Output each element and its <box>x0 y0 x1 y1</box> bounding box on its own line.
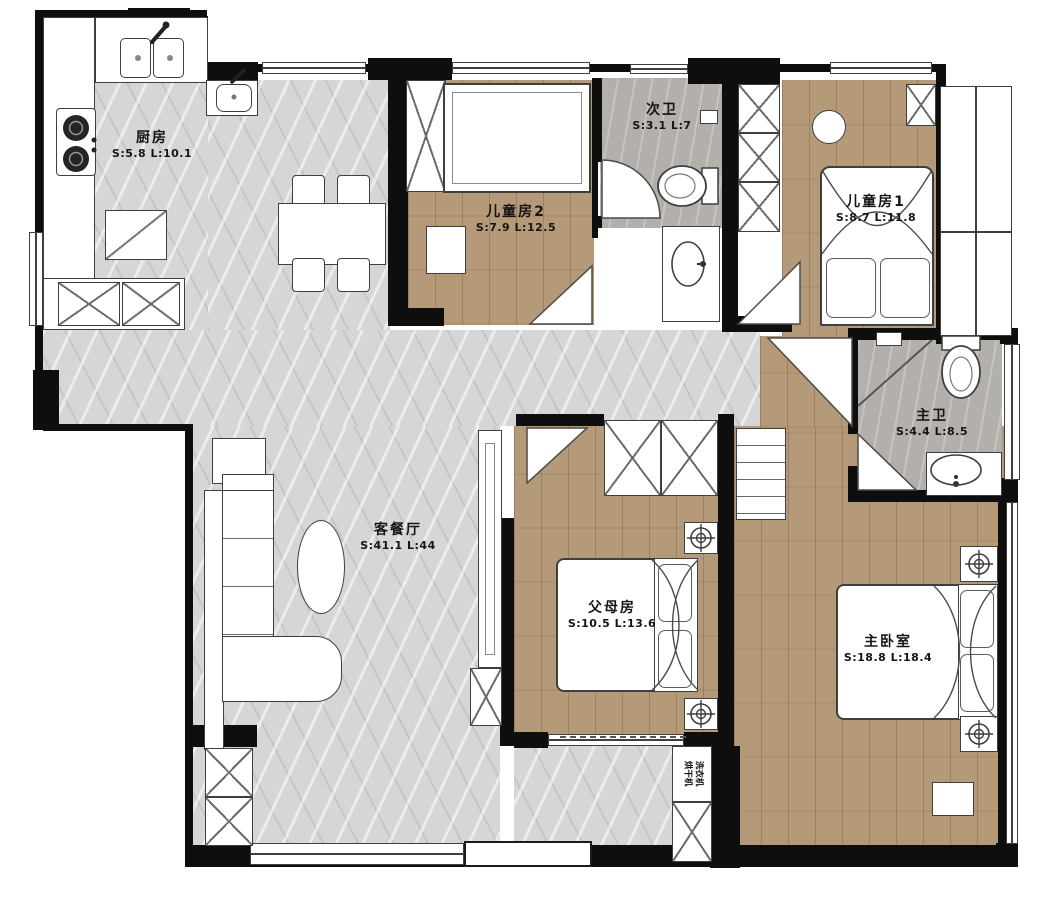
wall-segment <box>208 62 258 80</box>
bed-master <box>836 584 960 720</box>
window <box>262 62 366 74</box>
wall-segment <box>596 78 602 162</box>
wall-segment <box>516 414 604 426</box>
kitchen-cabinet <box>58 282 120 326</box>
wall-segment <box>388 78 408 316</box>
pillow <box>960 654 994 712</box>
window <box>548 734 684 746</box>
wardrobe <box>738 84 780 133</box>
window <box>830 62 932 74</box>
wall-segment <box>35 10 43 236</box>
floor-second-bath <box>600 78 722 228</box>
nightstand <box>960 546 998 582</box>
round-stool <box>812 110 846 144</box>
window <box>630 64 688 74</box>
dining-chair <box>292 258 325 292</box>
fridge <box>105 210 167 260</box>
kitchen-sink-left-basin <box>120 38 151 78</box>
desk <box>426 226 466 274</box>
shower-head <box>876 332 902 346</box>
shower-fixture <box>700 110 718 124</box>
nightstand <box>684 698 718 730</box>
wall-segment <box>514 732 548 748</box>
wall-segment <box>722 64 738 320</box>
wall-segment <box>368 58 452 80</box>
washer-dryer-label: 洗衣机 烘干机 <box>674 748 712 800</box>
wall-segment <box>185 424 193 848</box>
wardrobe <box>406 80 446 192</box>
storage-cabinet <box>470 668 502 726</box>
dining-chair <box>337 258 370 292</box>
storage-cabinet <box>205 748 253 797</box>
wall-segment <box>35 324 43 374</box>
laundry-cabinet <box>672 802 712 862</box>
wall-segment <box>500 518 514 746</box>
bed-mattress <box>452 92 582 184</box>
dryer-label-text: 烘干机 <box>682 761 693 787</box>
floor-plan: 洗衣机 烘干机 <box>0 0 1059 912</box>
sofa-seats <box>222 490 274 638</box>
pillow <box>960 590 994 648</box>
sofa-chaise <box>222 636 342 702</box>
tv-cabinet <box>478 430 502 668</box>
dining-table <box>278 203 386 265</box>
pillow <box>658 630 692 688</box>
kitchen-sink-right-basin <box>153 38 184 78</box>
pillow <box>880 258 930 318</box>
wall-segment <box>388 308 444 326</box>
sofa-back <box>204 490 224 750</box>
kitchen-counter-top <box>95 17 208 83</box>
bath-vanity <box>926 452 1002 496</box>
wardrobe <box>604 420 661 496</box>
floor-hallway <box>43 330 760 426</box>
coffee-table <box>297 520 345 614</box>
wardrobe <box>738 133 780 182</box>
window <box>250 843 464 865</box>
closet-shelves <box>736 428 786 520</box>
washer-label-text: 洗衣机 <box>693 761 704 787</box>
wall-segment <box>33 370 59 430</box>
window <box>1004 344 1020 480</box>
wall-segment <box>718 414 734 746</box>
wall-segment <box>998 500 1006 848</box>
wardrobe <box>738 182 780 232</box>
wardrobe <box>906 84 936 126</box>
bed-parents <box>556 558 656 692</box>
window <box>29 232 43 326</box>
wall-segment <box>722 316 792 332</box>
bay-window <box>940 232 1012 336</box>
pillow <box>826 258 876 318</box>
kitchen-cabinet <box>122 282 180 326</box>
storage-cabinet <box>205 797 253 846</box>
bath-vanity <box>662 226 720 322</box>
wall-segment <box>848 340 858 434</box>
nightstand <box>684 522 718 554</box>
window <box>452 62 590 74</box>
tv-cabinet-inner <box>485 443 495 655</box>
floor-master-entry <box>760 336 848 428</box>
bay-window <box>940 86 1012 232</box>
wall-segment <box>43 424 189 431</box>
nightstand <box>960 716 998 752</box>
wall-segment <box>1000 478 1018 502</box>
gas-stove <box>56 108 96 176</box>
dresser <box>932 782 974 816</box>
bed-kids2 <box>443 83 591 193</box>
entry-sink <box>216 84 252 112</box>
wall-segment <box>596 216 602 228</box>
wardrobe <box>661 420 718 496</box>
window <box>464 841 592 867</box>
window <box>1006 502 1018 844</box>
wall-segment <box>996 843 1018 867</box>
pillow <box>658 564 692 622</box>
